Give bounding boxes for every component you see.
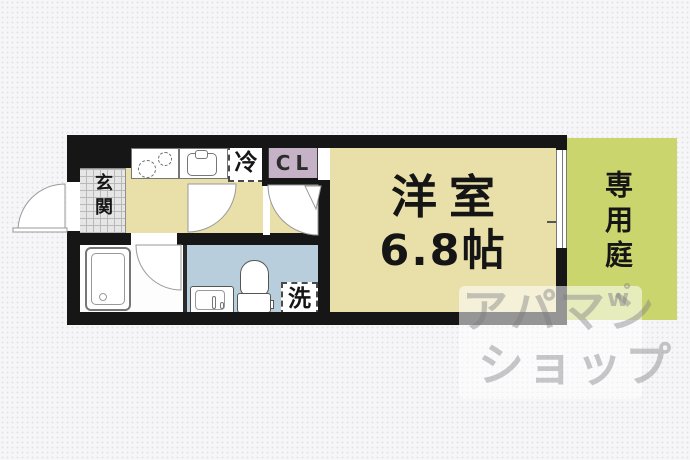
watermark-line2: ショップ [478,342,674,388]
garden-label: 専用庭 [603,170,631,275]
entry-door-arc [18,184,65,231]
watermark-logo-ring [624,283,630,289]
entry-door-leaf [13,228,67,232]
bathroom-door-arc [136,245,181,290]
main-room-size: 6.8帖 [330,230,556,273]
main-room-name: 洋室 [330,174,556,220]
genkan-label: 玄関 [93,173,111,221]
floorplan-canvas: 冷 CL 洗 [0,0,690,460]
hall-door-arc [188,184,236,232]
